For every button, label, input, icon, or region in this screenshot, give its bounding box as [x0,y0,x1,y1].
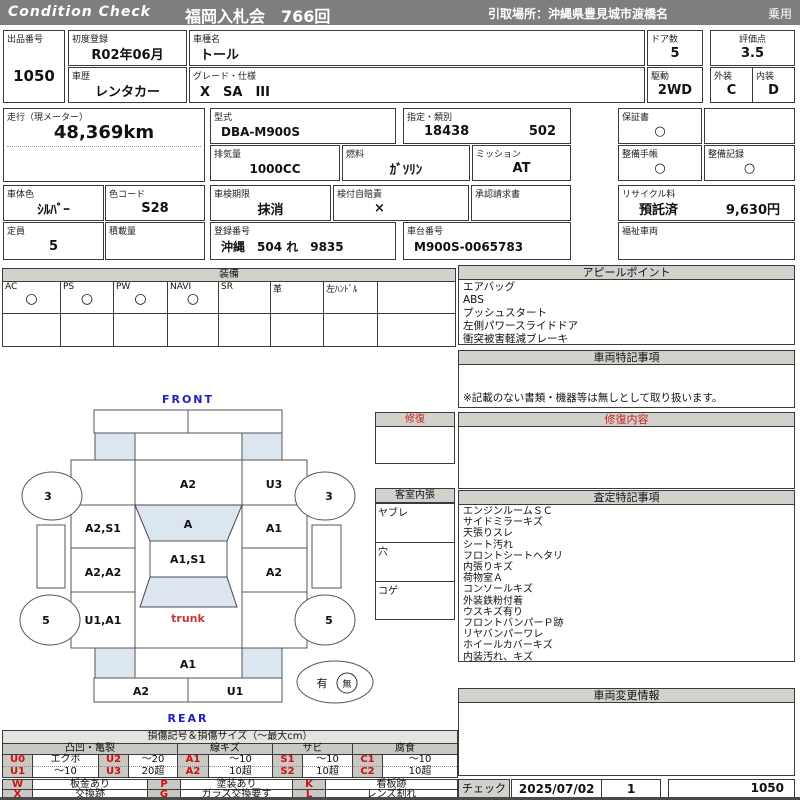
field-value: D [753,79,794,102]
trunk-label: trunk [171,612,205,625]
field-value: 48,369km [4,120,204,145]
section-title: 車両特記事項 [459,351,794,365]
spare-none-label: 無 [342,678,351,690]
field-value: ○ [705,157,794,180]
legend-code: U0 [3,755,33,766]
appeal-item: 左側パワースライドドア [463,320,790,333]
legend-desc: ～10 [33,766,99,777]
equipment-cell-extra [378,282,455,314]
field-displacement: 排気量 1000CC [210,145,340,181]
appeal-item: エアバッグ [463,281,790,294]
assessment-item: サイドミラーキズ [463,517,790,528]
legend-desc: ～10 [209,755,273,766]
field-value: ｶﾞｿﾘﾝ [343,157,469,180]
right-sill-panel [312,525,341,588]
lining-row-burn: コゲ [376,581,454,620]
section-title: 査定特記事項 [459,491,794,505]
field-fuel: 燃料 ｶﾞｿﾘﾝ [342,145,470,181]
assessment-list: エンジンルームＳＣ サイドミラーキズ 天張りスレ シート汚れ フロントシートヘタ… [459,505,794,664]
field-value: M900S-0065783 [404,234,570,259]
rear-corner-right [242,648,282,678]
class-number: 502 [529,124,556,139]
section-title: 客室内張 [376,489,454,503]
legend-code: A2 [178,766,209,777]
legend-row: U0 エクボ U2 ～20 A1 ～10 S1 ～10 C1 ～10 [3,755,457,766]
equipment-title: 装備 [3,269,455,282]
front-left-tread: 3 [44,490,52,503]
field-grade: グレード・仕様 X SA III [189,67,645,103]
field-lot-number: 出品番号 1050 [3,30,65,103]
field-label: 承認請求書 [475,187,520,200]
front-corner-right [242,433,282,460]
field-value: トール [190,42,644,65]
type-number: 18438 [424,124,469,139]
assessment-item: 荷物室Ａ [463,573,790,584]
legend-desc: ～20 [129,755,178,766]
field-maintenance-record: 整備記録 ○ [704,145,795,181]
equipment-mark: ○ [114,291,167,307]
appeal-item: 衝突被害軽減ブレーキ [463,333,790,346]
equipment-cell-ac: AC○ [3,282,61,314]
field-capacity: 定員 5 [3,222,104,260]
assessment-item: ホイールカバーキズ [463,640,790,651]
cabin-lining-box: 客室内張 ヤブレ 穴 コゲ [375,488,455,620]
legend-code: U1 [3,766,33,777]
legend-desc: ～10 [303,755,353,766]
field-value: 18438 502 [404,120,570,143]
field-mileage: 走行（現メーター） 48,369km [3,108,205,182]
field-registration-number: 登録番号 沖縄 504 れ 9835 [210,222,396,260]
equipment-table: 装備 AC○ PS○ PW○ NAVI○ SR 革 左ﾊﾝﾄﾞﾙ [2,268,456,347]
assessment-notes-section: 査定特記事項 エンジンルームＳＣ サイドミラーキズ 天張りスレ シート汚れ フロ… [458,490,795,662]
section-title: アピールポイント [459,266,794,280]
assessment-item: ウスキズ有り [463,607,790,618]
field-label: 出品番号 [7,32,43,45]
left-rear-door-mark: A2,A2 [85,566,122,579]
field-value: 5 [4,234,103,259]
repair-content-section: 修復内容 [458,412,795,489]
equipment-cell-empty [219,314,271,346]
field-value: AT [473,157,570,180]
field-approval: 承認請求書 [471,185,571,221]
field-warranty: 保証書 ○ [618,108,702,144]
assessment-item: フロントバンパーＰ跡 [463,618,790,629]
field-value: DBA-M900S [211,120,395,143]
left-quarter-mark: U1,A1 [85,614,122,627]
recycle-status: 預託済 [639,199,678,218]
assessment-item: リヤバンパーワレ [463,629,790,640]
windshield-mark: A [184,518,193,531]
field-inspection: 車検期限 抹消 [210,185,331,221]
equipment-cell-empty [271,314,324,346]
legend-desc: エクボ [33,755,99,766]
assessment-item: 内張りキズ [463,562,790,573]
front-left-tire [22,472,82,520]
check-lot-number: 1050 [668,779,795,798]
left-front-door-mark: A2,S1 [85,522,121,535]
appeal-points-section: アピールポイント エアバッグ ABS プッシュスタート 左側パワースライドドア … [458,265,795,345]
field-drive: 駆動 2WD [647,67,703,103]
field-empty-box [704,108,795,144]
left-sill-panel [37,525,65,588]
field-value: × [334,197,468,220]
rear-bumper-left-mark: A2 [133,685,149,698]
field-body-color: 車体色 ｼﾙﾊﾞｰ [3,185,104,221]
equipment-mark: ○ [3,291,60,307]
right-front-fender-mark: U3 [266,478,283,491]
legend-row: U1 ～10 U3 20超 A2 10超 S2 10超 C2 10超 [3,766,457,777]
field-doors: ドア数 5 [647,30,703,66]
assessment-item: シート汚れ [463,540,790,551]
equipment-cell-empty [378,314,455,346]
front-center [135,433,242,460]
equipment-mark: ○ [61,291,113,307]
equipment-cell-leather: 革 [271,282,324,314]
field-chassis-number: 車台番号 M900S-0065783 [403,222,571,260]
legend-desc: 10超 [209,766,273,777]
vehicle-category: 乗用 [768,5,792,22]
equipment-cell-ps: PS○ [61,282,114,314]
field-value: 1050 [4,49,64,102]
assessment-item: 天張りスレ [463,528,790,539]
disclaimer-note: ※記載のない書類・機器等は無しとして取り扱います。 [463,390,722,405]
field-value: C [711,79,752,102]
legend-code: S2 [273,766,303,777]
legend-code: U2 [99,755,129,766]
rear-left-tire [20,595,80,645]
assessment-item: コンソールキズ [463,584,790,595]
field-label: 福祉車両 [622,224,658,237]
rear-panel-mark: A1 [180,658,196,671]
lining-label: 穴 [378,543,388,558]
equipment-cell-sr: SR [219,282,271,314]
assessment-item: 内装汚れ、キズ [463,652,790,663]
auction-title: 福岡入札会 766回 [185,3,330,27]
rear-bumper-right-mark: U1 [227,685,244,698]
check-date: 2025/07/02 [512,780,602,797]
field-model-code: 型式 DBA-M900S [210,108,396,144]
field-color-code: 色コード S28 [105,185,205,221]
field-history: 車歴 レンタカー [68,67,187,103]
assessment-item: 外装鉄粉付着 [463,596,790,607]
legend-desc: ～10 [383,755,457,766]
legend-desc: 20超 [129,766,178,777]
recycle-amount: 9,630円 [726,199,780,218]
field-exterior-grade: 外装 C [710,67,753,103]
vehicle-notes-section: 車両特記事項 ※記載のない書類・機器等は無しとして取り扱います。 [458,350,795,408]
legend-code: U3 [99,766,129,777]
field-maintenance-book: 整備手帳 ○ [618,145,702,181]
field-value: 5 [648,42,702,65]
repair-mini-box: 修復 [375,412,455,464]
field-value: 抹消 [211,197,330,220]
right-front-door-mark: A1 [266,522,282,535]
auction-condition-sheet: Condition Check 福岡入札会 766回 引取場所：沖縄県豊見城市渡… [0,0,800,800]
equipment-cell-pw: PW○ [114,282,168,314]
equipment-cell-empty [114,314,168,346]
rear-label: REAR [168,712,209,725]
rear-right-tread: 5 [325,614,333,627]
front-right-tread: 3 [325,490,333,503]
appeal-item: ABS [463,294,790,307]
check-count: 1 [602,780,660,797]
front-corner-left [95,433,135,460]
check-label: チェック [458,779,510,798]
field-welfare-vehicle: 福祉車両 [618,222,795,260]
field-insurance: 検付自賠責 × [333,185,469,221]
equipment-cell-navi: NAVI○ [168,282,219,314]
field-label: 積載量 [109,224,136,237]
rear-corner-left [95,648,135,678]
lining-label: ヤブレ [378,504,408,519]
field-value: ○ [619,157,701,180]
lining-row-hole: 穴 [376,542,454,581]
equipment-cell-empty [3,314,61,346]
rear-window-panel [140,577,237,607]
legend-code: A1 [178,755,209,766]
field-value: 預託済 9,630円 [619,197,794,220]
roof-mark: A1,S1 [170,553,206,566]
field-value: レンタカー [69,79,186,102]
legend-code: C2 [353,766,383,777]
field-value: 2WD [648,79,702,102]
check-box: 2025/07/02 1 [511,779,661,798]
pickup-location: 引取場所：沖縄県豊見城市渡橋名 [488,5,668,22]
right-rear-door-mark: A2 [266,566,282,579]
field-model-name: 車種名 トール [189,30,645,66]
field-interior-grade: 内装 D [752,67,795,103]
assessment-item: エンジンルームＳＣ [463,506,790,517]
legend-desc: 10超 [383,766,457,777]
header-bar: Condition Check 福岡入札会 766回 引取場所：沖縄県豊見城市渡… [0,0,800,25]
brand-title: Condition Check [8,4,151,20]
field-score: 評価点 3.5 [710,30,795,66]
field-load: 積載量 [105,222,205,260]
field-transmission: ミッション AT [472,145,571,181]
section-title: 修復内容 [459,413,794,427]
legend-code: C1 [353,755,383,766]
legend-code: S1 [273,755,303,766]
spare-tire-indicator [297,661,373,703]
field-value: S28 [106,197,204,220]
equipment-label: 革 [273,282,282,295]
field-first-registration: 初度登録 R02年06月 [68,30,187,66]
field-recycle-fee: リサイクル料 預託済 9,630円 [618,185,795,221]
lining-row-tear: ヤブレ [376,503,454,542]
equipment-cell-empty [61,314,114,346]
field-type-class: 指定・類別 18438 502 [403,108,571,144]
equipment-mark: ○ [168,291,218,307]
field-value: 3.5 [711,42,794,65]
legend-desc: 10超 [303,766,353,777]
front-label: FRONT [162,393,214,406]
field-value: 1000CC [211,157,339,180]
field-value: X SA III [190,79,644,102]
section-title: 車両変更情報 [459,689,794,703]
equipment-cell-empty [324,314,378,346]
equipment-grid: AC○ PS○ PW○ NAVI○ SR 革 左ﾊﾝﾄﾞﾙ [3,282,455,346]
change-info-section: 車両変更情報 [458,688,795,776]
assessment-item: フロントシートヘタリ [463,551,790,562]
field-value: 沖縄 504 れ 9835 [211,234,395,259]
divider [7,146,201,147]
rear-left-tread: 5 [42,614,50,627]
equipment-cell-empty [168,314,219,346]
equipment-cell-lhd: 左ﾊﾝﾄﾞﾙ [324,282,378,314]
appeal-points-list: エアバッグ ABS プッシュスタート 左側パワースライドドア 衝突被害軽減ブレー… [459,280,794,347]
lining-label: コゲ [378,582,398,597]
field-value: ○ [619,120,701,143]
hood-mark: A2 [180,478,196,491]
damage-diagram: FRONT A2 U3 A A2,S1 A1 A1,S1 A2,A2 A2 U1… [15,392,375,727]
section-title: 修復 [376,413,454,427]
equipment-label: SR [221,282,233,292]
appeal-item: プッシュスタート [463,307,790,320]
field-value: ｼﾙﾊﾞｰ [4,197,103,220]
equipment-label: 左ﾊﾝﾄﾞﾙ [326,282,358,295]
damage-legend-table: 損傷記号＆損傷サイズ（～最大cm） 凸凹・亀裂 線キズ サビ 腐食 U0 エクボ… [2,730,458,778]
spare-has-label: 有 [317,676,328,690]
field-value: R02年06月 [69,42,186,65]
